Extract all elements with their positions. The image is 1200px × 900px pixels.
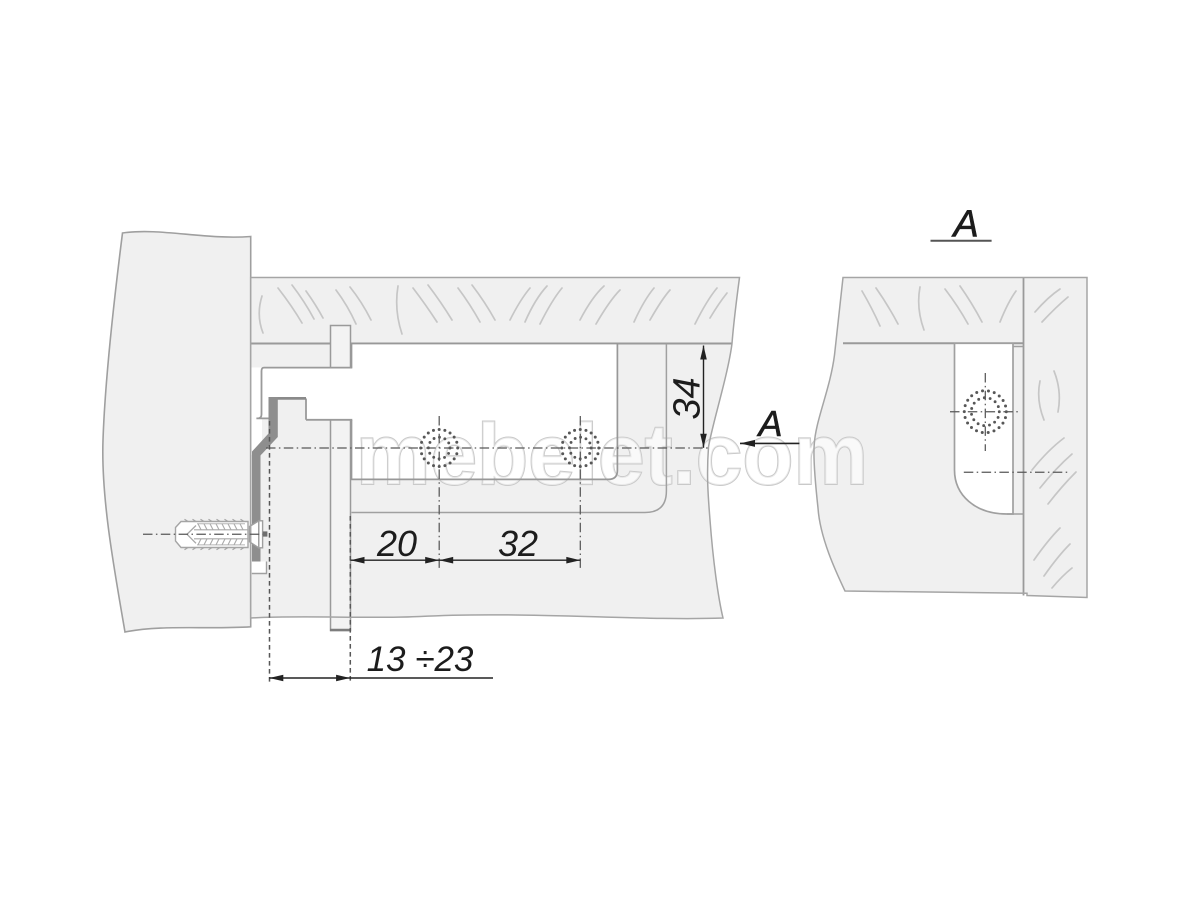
svg-text:A: A [756,403,782,444]
svg-text:32: 32 [498,523,538,564]
svg-text:20: 20 [376,523,417,564]
svg-text:34: 34 [667,377,709,419]
svg-text:mebelet.com: mebelet.com [356,407,868,503]
svg-text:13 ÷23: 13 ÷23 [367,640,474,679]
svg-text:A: A [951,203,978,245]
